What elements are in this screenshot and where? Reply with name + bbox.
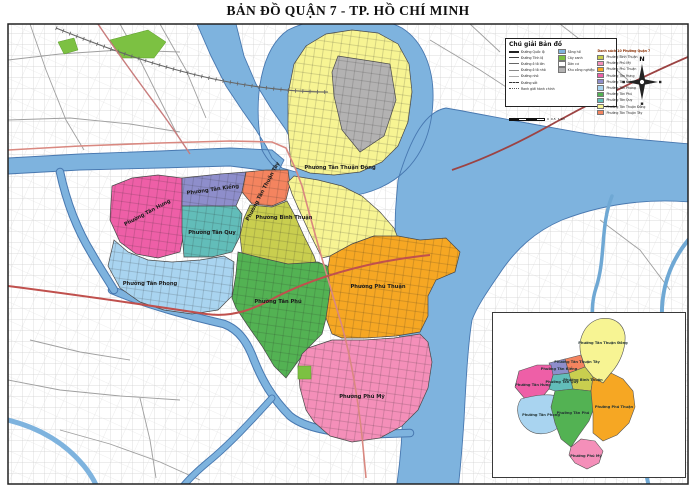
park-in-ward: [298, 366, 311, 379]
area-swatch: [558, 49, 566, 55]
road-symbol: [509, 57, 519, 58]
legend-area-column: Sông hồ Cây xanh Dân cư Khu công nghiệp: [558, 49, 595, 115]
scale-bar: 0 0,5 1 km: [509, 117, 613, 121]
scale-label-one: 1 km: [558, 117, 566, 121]
compass-tick-west: [623, 81, 625, 83]
inset-label-tan-phu: Phường Tân Phú: [557, 411, 590, 415]
legend-area-label: Cây xanh: [568, 56, 583, 60]
area-swatch: [558, 61, 566, 67]
road-symbol: [509, 51, 519, 53]
ward-swatch: [597, 73, 604, 78]
scale-segment: [518, 118, 527, 121]
legend-area-label: Khu công nghiệp: [568, 68, 595, 72]
inset-ward-tan-phu: [551, 389, 595, 447]
area-swatch: [558, 67, 566, 73]
inset-label-tan-phong: Phường Tân Phong: [522, 413, 560, 417]
legend-road-label: Ranh giới hành chính: [521, 87, 555, 91]
ward-swatch: [597, 104, 604, 109]
inset-label-tan-kieng: Phường Tân Kiểng: [541, 366, 578, 371]
scale-segment: [527, 118, 536, 121]
ward-swatch: [597, 79, 604, 84]
ward-label-tan-quy: Phường Tân Quy: [188, 229, 236, 236]
compass-tick-east: [659, 81, 661, 83]
legend-road-label: Đường ô tô nhỏ: [521, 68, 546, 72]
road-symbol: [509, 76, 519, 77]
ward-swatch: [597, 98, 604, 103]
scale-label-zero: 0: [547, 117, 549, 121]
compass-hub: [639, 79, 644, 84]
legend-road-label: Đường Tỉnh lộ: [521, 56, 543, 60]
area-swatch: [558, 55, 566, 61]
ward-swatch: [597, 92, 604, 97]
inset-map: Phường Tân Hưng Phường Tân Kiểng Phường …: [493, 313, 684, 476]
map-page: BẢN ĐỒ QUẬN 7 - TP. HỒ CHÍ MINH: [0, 0, 696, 491]
inset-label-phu-thuan: Phường Phú Thuận: [595, 405, 634, 409]
scale-segment: [509, 118, 518, 121]
legend-title: Chú giải Bản đồ: [509, 41, 613, 48]
compass-north-label: N: [639, 55, 644, 63]
boundary-symbol: [509, 88, 519, 89]
road-symbol: [509, 70, 519, 71]
legend-area-label: Sông hồ: [568, 50, 581, 54]
ward-label-tan-phong: Phường Tân Phong: [123, 280, 178, 287]
legend-road-label: Đường nhỏ: [521, 74, 539, 78]
legend-road-column: Đường Quốc lộ Đường Tỉnh lộ Đường ô tô l…: [509, 49, 555, 115]
ward-swatch: [597, 85, 604, 90]
ward-list-item: Phường Tân Thuận Tây: [606, 111, 642, 115]
ward-swatch: [597, 67, 604, 72]
ward-swatch: [597, 61, 604, 66]
compass-rose: N: [622, 52, 662, 108]
inset-map-box: Phường Tân Hưng Phường Tân Kiểng Phường …: [492, 312, 686, 478]
scale-label-half: 0,5: [551, 117, 556, 121]
ward-label-tan-phu: Phường Tân Phú: [254, 298, 302, 305]
ward-label-phu-my: Phường Phú Mỹ: [339, 393, 385, 400]
inset-label-tan-thuan-dong: Phường Tân Thuận Đông: [578, 341, 628, 345]
ward-label-binh-thuan: Phường Bình Thuận: [255, 214, 312, 221]
ward-label-tan-thuan-dong: Phường Tân Thuận Đông: [304, 164, 376, 171]
road-symbol: [509, 63, 519, 64]
legend-box: Chú giải Bản đồ Đường Quốc lộ Đường Tỉnh…: [505, 38, 617, 107]
ward-swatch: [597, 55, 604, 60]
compass-tick-south: [641, 103, 643, 105]
legend-road-label: Đường ô tô lớn: [521, 62, 545, 66]
ward-swatch: [597, 110, 604, 115]
legend-area-label: Dân cư: [568, 62, 579, 66]
scale-segment: [536, 118, 545, 121]
ward-label-phu-thuan: Phường Phú Thuận: [350, 283, 405, 290]
inset-label-tan-thuan-tay: Phường Tân Thuận Tây: [554, 360, 600, 364]
legend-road-label: Đường Quốc lộ: [521, 50, 545, 54]
legend-road-label: Đường sắt: [521, 81, 537, 85]
inset-label-binh-thuan: Phường Bình Thuận: [563, 378, 603, 382]
railway-symbol: [509, 82, 519, 83]
inset-label-phu-my: Phường Phú Mỹ: [570, 454, 602, 458]
